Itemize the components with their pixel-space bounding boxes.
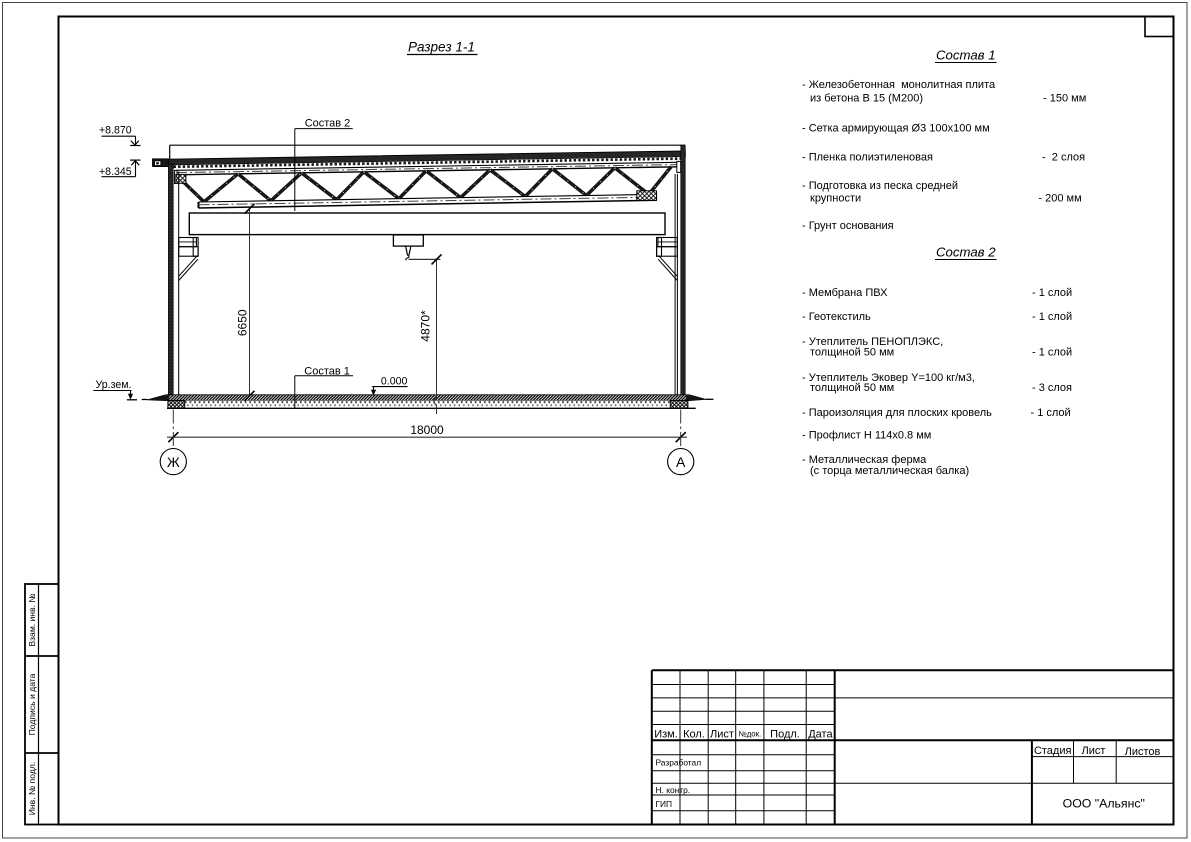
svg-text:ООО "Альянс": ООО "Альянс" [1063,797,1145,811]
svg-text:Ж: Ж [167,454,180,470]
svg-text:Состав 2: Состав 2 [936,245,996,260]
svg-text:Взам. инв. №: Взам. инв. № [27,593,37,646]
svg-text:ГИП: ГИП [656,799,673,809]
svg-text:(с торца металлическая балка): (с торца металлическая балка) [810,465,969,477]
svg-text:18000: 18000 [410,423,444,437]
svg-text:- Подготовка из песка средней: - Подготовка из песка средней [802,180,958,192]
svg-text:4870*: 4870* [419,310,433,342]
svg-text:Разрез 1-1: Разрез 1-1 [408,40,475,55]
svg-text:Состав 2: Состав 2 [305,117,351,129]
svg-text:Подпись и дата: Подпись и дата [27,673,37,735]
svg-text:№док.: №док. [738,730,761,739]
svg-text:Н. контр.: Н. контр. [656,785,691,795]
svg-text:6650: 6650 [236,309,250,336]
svg-text:0.000: 0.000 [381,375,408,387]
svg-text:Дата: Дата [808,729,833,741]
svg-text:Подл.: Подл. [770,729,800,741]
svg-text:Лист: Лист [710,729,734,741]
svg-text:- Мембрана ПВХ: - Мембрана ПВХ [802,287,888,299]
svg-text:- Сетка армирующая Ø3 100х100: - Сетка армирующая Ø3 100х100 мм [802,123,990,135]
svg-text:- 3 слоя: - 3 слоя [1032,382,1072,394]
svg-text:- 1 слой: - 1 слой [1032,287,1072,299]
svg-text:Состав 1: Состав 1 [936,48,996,63]
svg-text:Изм.: Изм. [654,729,678,741]
svg-text:- 200 мм: - 200 мм [1038,193,1081,205]
svg-text:- 1 слой: - 1 слой [1032,311,1072,323]
svg-text:крупности: крупности [810,193,861,205]
svg-text:- Профлист Н 114х0.8 мм: - Профлист Н 114х0.8 мм [802,429,931,441]
svg-text:Инв. № подл.: Инв. № подл. [27,762,37,816]
svg-text:Разработал: Разработал [656,758,702,768]
svg-text:Листов: Листов [1125,746,1161,758]
svg-text:Кол.: Кол. [683,729,705,741]
svg-text:- 1 слой: - 1 слой [1032,346,1072,358]
svg-text:Ур.зем.: Ур.зем. [96,379,132,391]
svg-text:- Пленка полиэтиленовая: - Пленка полиэтиленовая [802,151,933,163]
svg-text:- Геотекстиль: - Геотекстиль [802,311,871,323]
svg-text:Лист: Лист [1082,745,1106,757]
svg-text:- Грунт основания: - Грунт основания [802,220,894,232]
svg-text:А: А [676,454,686,470]
svg-text:- 1 слой: - 1 слой [1031,407,1071,419]
svg-text:- 2 слоя: - 2 слоя [1042,151,1085,163]
svg-text:толщиной 50 мм: толщиной 50 мм [810,346,894,358]
svg-text:+8.870: +8.870 [99,125,132,137]
svg-text:- 150 мм: - 150 мм [1043,93,1086,105]
svg-text:толщиной 50 мм: толщиной 50 мм [810,382,894,394]
svg-text:- Пароизоляция для плоских кро: - Пароизоляция для плоских кровель [802,407,992,419]
svg-text:Стадия: Стадия [1034,745,1072,757]
svg-text:- Железобетонная монолитная п: - Железобетонная монолитная плита [802,79,996,91]
svg-text:из бетона В 15 (М200): из бетона В 15 (М200) [810,93,923,105]
